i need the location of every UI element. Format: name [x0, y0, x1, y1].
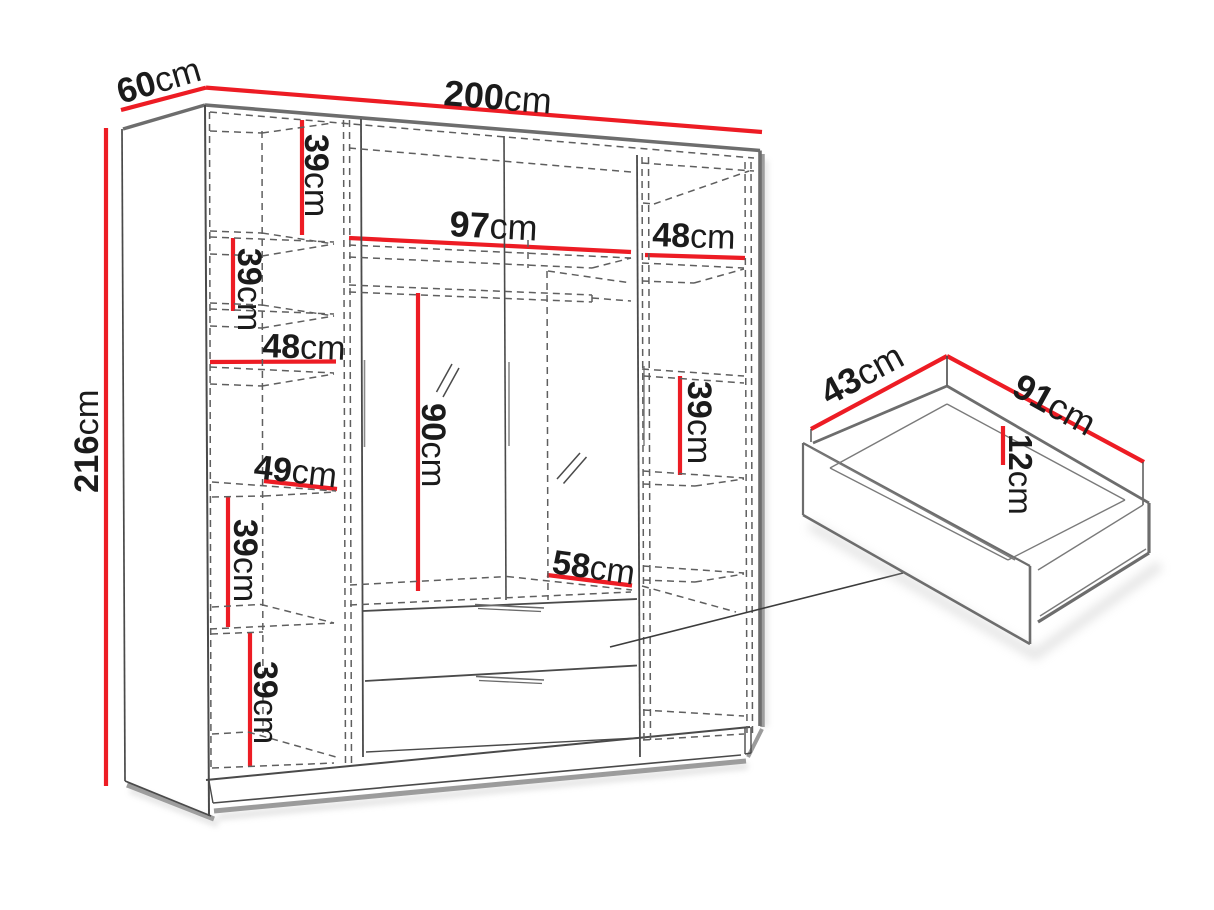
- svg-text:97cm: 97cm: [449, 203, 539, 249]
- svg-text:39cm: 39cm: [246, 661, 284, 744]
- svg-text:39cm: 39cm: [226, 519, 264, 602]
- svg-text:48cm: 48cm: [262, 327, 346, 368]
- svg-text:48cm: 48cm: [652, 216, 736, 257]
- svg-text:39cm: 39cm: [230, 248, 268, 331]
- svg-text:39cm: 39cm: [680, 381, 718, 464]
- svg-text:216cm: 216cm: [68, 389, 106, 493]
- svg-text:200cm: 200cm: [442, 72, 553, 122]
- svg-text:90cm: 90cm: [414, 403, 452, 487]
- svg-text:39cm: 39cm: [297, 134, 335, 217]
- svg-text:12cm: 12cm: [1002, 434, 1039, 515]
